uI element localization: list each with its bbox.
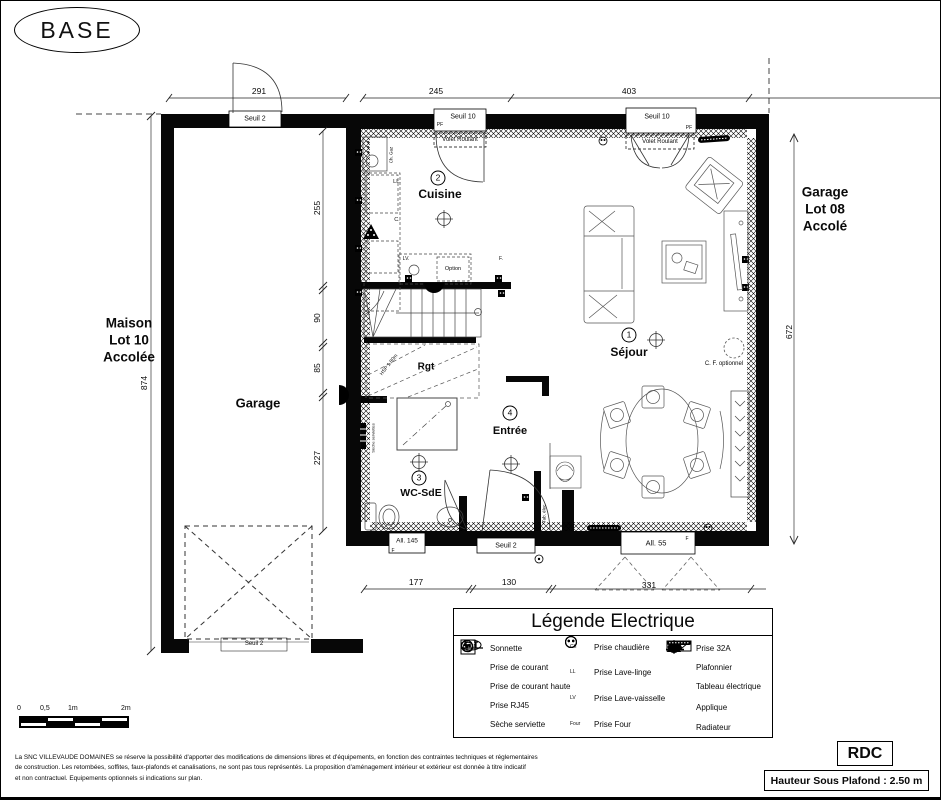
legend-item: Applique <box>666 696 761 718</box>
entry-fittings <box>550 443 581 489</box>
wall-radiator <box>731 391 749 497</box>
seuil10-cuisine-label: Seuil 10 <box>450 114 475 121</box>
pf-label: PF <box>686 125 692 131</box>
dim-bottom-130: 130 <box>502 577 516 587</box>
maison-lot-label: Lot 10 <box>109 333 149 348</box>
shutters <box>595 557 720 590</box>
room-label-garage: Garage <box>236 396 281 411</box>
legend-item: Plafonnier <box>666 658 761 677</box>
all145-label: All. 145 <box>396 538 418 545</box>
lv-label: LV. <box>403 256 410 262</box>
garage-lot-label: Garage <box>802 185 849 200</box>
dim-bottom-331: 331 <box>642 580 656 590</box>
legend-item: Prise de courant <box>460 658 571 677</box>
dim-inner-90: 90 <box>312 313 322 322</box>
room-label-rgt: Rgt <box>418 362 435 373</box>
legend-column-1: Sonnette Prise de courant Prise de coura… <box>460 639 571 734</box>
prise-four-icon: Four <box>564 722 590 727</box>
scale-tick-label: 2m <box>121 705 131 712</box>
legend-item: Four Prise Four <box>564 711 665 737</box>
room-number-entree: 4 <box>503 406 518 421</box>
legend-title: Légende Electrique <box>454 609 772 636</box>
garage-lot-label: Lot 08 <box>805 202 845 217</box>
applique-symbol <box>424 283 444 293</box>
option-label: Option <box>445 266 461 272</box>
dim-top-403: 403 <box>622 86 636 96</box>
furniture <box>584 156 748 498</box>
garage-lot-label: Accolé <box>803 219 847 234</box>
dim-inner-85: 85 <box>312 363 322 372</box>
pf-label: PF <box>437 122 443 128</box>
legend-item: Prise de courant haute <box>460 677 571 696</box>
legend-item: LL Prise Lave-linge <box>564 659 665 685</box>
legend-electrique: Légende Electrique Sonnette Prise de cou… <box>453 608 773 738</box>
scale-bar-graphic <box>19 716 129 728</box>
ceiling-height-box: Hauteur Sous Plafond : 2.50 m <box>764 770 929 791</box>
f-label: F <box>391 548 394 554</box>
legend-item: RJ45 Prise RJ45 <box>460 696 571 715</box>
legend-item: Ch Prise chaudière <box>564 635 665 659</box>
f-dot-label: F. <box>499 256 503 262</box>
room-number-wc: 3 <box>412 471 427 486</box>
room-number-cuisine: 2 <box>431 171 446 186</box>
legend-item: Radiateur <box>666 718 761 737</box>
legend-item: LV Prise Lave-vaisselle <box>564 685 665 711</box>
maison-lot-label: Accolée <box>103 350 155 365</box>
dim-inner-255: 255 <box>312 201 322 215</box>
room-label-entree: Entrée <box>493 425 527 437</box>
dim-left-874: 874 <box>139 376 149 390</box>
prise-lave-linge-icon: LL <box>564 670 590 675</box>
dim-top-245: 245 <box>429 86 443 96</box>
volet-roulant-label: Volet Roulant <box>642 139 678 145</box>
legend-column-2: Ch Prise chaudière LL Prise Lave-linge L… <box>564 635 665 737</box>
stairs <box>364 289 482 337</box>
seuil10-sejour-label: Seuil 10 <box>644 114 669 121</box>
legend-item: Tableau électrique <box>666 677 761 696</box>
prise-lave-vaisselle-icon: LV <box>564 696 590 701</box>
room-number-sejour: 1 <box>622 328 637 343</box>
electric-symbols <box>355 137 749 563</box>
seche-serviettes-symbol <box>361 423 366 449</box>
cf-optionnel-symbol <box>724 338 744 358</box>
base-badge: BASE <box>14 7 140 53</box>
room-label-cuisine: Cuisine <box>418 187 461 201</box>
garage-door <box>185 526 312 642</box>
legend-column-3: Prise 32A Plafonnier Tableau électrique … <box>666 639 761 737</box>
seuil2-entree-label: Seuil 2 <box>495 543 516 550</box>
radiateur-symbol <box>587 525 621 531</box>
ch-gaz-label: Ch. Gaz <box>389 147 394 164</box>
dim-bottom-177: 177 <box>409 577 423 587</box>
lot-boundary-lines <box>76 58 769 114</box>
dim-top-291: 291 <box>252 86 266 96</box>
legend-item: Sèche serviette <box>460 715 571 734</box>
cf-optionnel-label: C. F. optionnel <box>705 361 743 367</box>
scale-tick-label: 1m <box>68 705 78 712</box>
scale-tick-label: 0,5 <box>40 705 50 712</box>
tab-elec-label: Tab. élec. <box>542 503 547 522</box>
disclaimer-text: La SNC VILLEVAUDE DOMAINES se réserve la… <box>15 753 691 784</box>
c-label: C. <box>394 217 400 223</box>
volet-roulant-label: Volet Roulant <box>442 137 478 143</box>
scale-tick-label: 0 <box>17 705 21 712</box>
room-label-wc: WC-SdE <box>400 487 441 499</box>
walls <box>161 114 769 653</box>
all55-label: All. 55 <box>646 539 667 548</box>
floor-plan-page: BASE Maison Lot 10 Accolée Garage Lot 08… <box>0 0 941 800</box>
dim-inner-227: 227 <box>312 451 322 465</box>
seuil2-garage-door-label: Seuil 2 <box>245 641 263 647</box>
dimension-lines <box>147 94 941 655</box>
seche-serviettes-label: Sèche serviettes <box>371 423 376 453</box>
ll-label: LL. <box>393 179 401 185</box>
floor-badge-rdc: RDC <box>837 741 893 766</box>
room-label-sejour: Séjour <box>610 345 647 359</box>
f-label: F <box>685 536 688 542</box>
maison-lot-label: Maison <box>106 316 153 331</box>
wc-fixtures <box>365 398 463 530</box>
scale-bar: 0 0,5 1m 2m <box>19 705 139 728</box>
seuil2-garage-label: Seuil 2 <box>244 116 265 123</box>
dim-right-672: 672 <box>784 325 794 339</box>
